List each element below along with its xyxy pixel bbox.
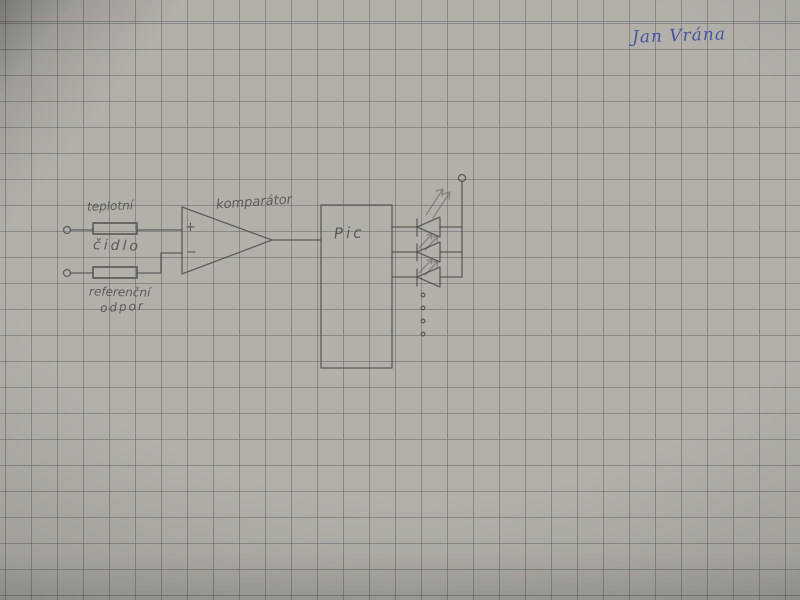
label-reference-line1: referenční [89,284,151,299]
supply-rail [459,175,466,278]
led-emission-arrows [419,189,450,275]
label-sensor-line1: teplotní [87,198,133,214]
comparator-symbol [182,207,321,274]
temperature-sensor-resistor [93,223,182,234]
input-terminal-top [64,227,94,234]
label-sensor-line2: čidlo [93,237,141,255]
label-mcu: Pic [334,223,365,242]
label-minus-input: − [186,245,197,260]
led-2 [392,242,462,262]
led-3 [392,267,462,287]
label-plus-input: + [185,220,196,235]
photo-of-hand-drawn-schematic: teplotní čidlo referenční odpor komparát… [0,0,800,600]
signature: Jan Vrána [632,24,727,47]
continuation-dots [421,293,425,336]
label-reference-line2: odpor [100,299,146,315]
led-1 [392,217,462,237]
input-terminal-bottom [64,270,94,277]
reference-resistor [93,253,182,278]
